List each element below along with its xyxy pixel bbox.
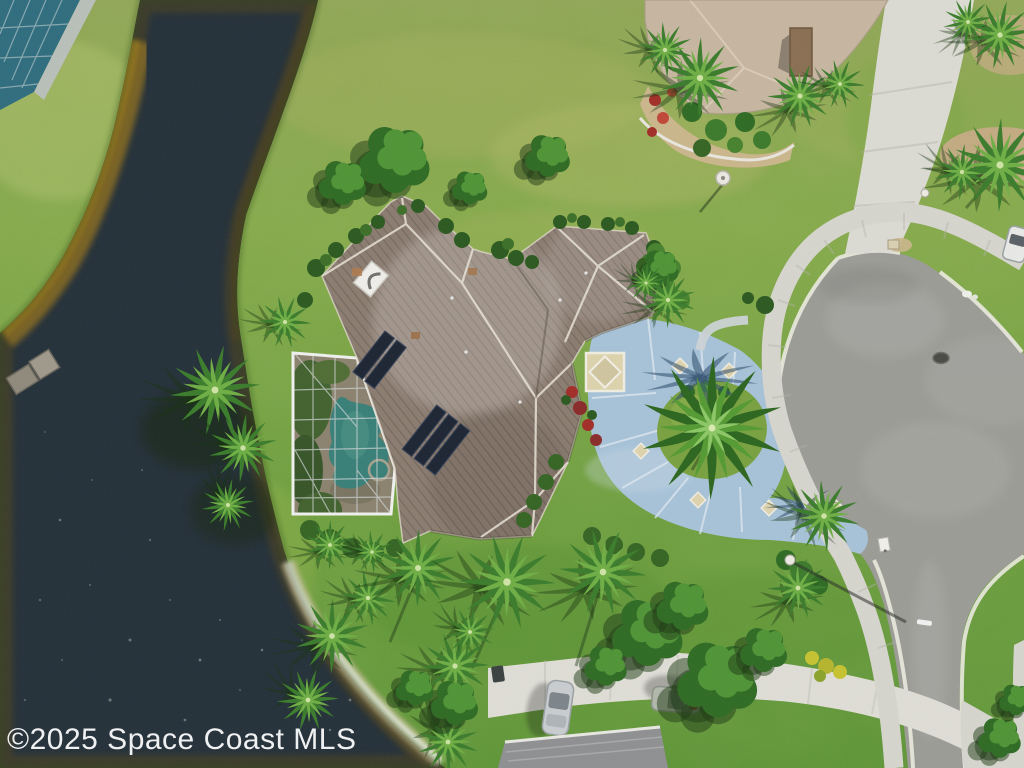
photo-grain (0, 0, 1024, 768)
watermark: ©2025 Space Coast MLS (7, 723, 356, 756)
aerial-photo: ©2025 Space Coast MLS (0, 0, 1024, 768)
